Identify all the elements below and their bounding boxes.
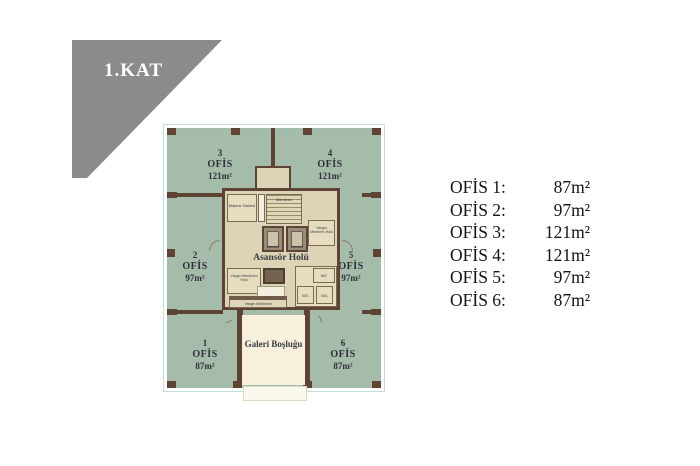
legend-office-name: OFİS 3: [450, 222, 506, 243]
floor-plan: 3 OFİS 121m² 4 OFİS 121m² 2 OFİS 97m² 5 … [167, 128, 381, 388]
shaft-hall: Yangın Merdiven Holü [308, 220, 335, 246]
page-canvas: 1.KAT 3 OFİS 121m² [0, 0, 700, 466]
light-shaft [258, 194, 265, 222]
office-type: OFİS [193, 159, 247, 171]
office-area: 97m² [171, 273, 219, 284]
mullion-ticks-right [378, 128, 381, 388]
office-number: 1 [181, 338, 229, 349]
office-number: 3 [193, 148, 247, 159]
office-3-label: 3 OFİS 121m² [193, 148, 247, 182]
office-area: 87m² [181, 361, 229, 372]
office-1-label: 1 OFİS 87m² [181, 338, 229, 372]
wall-stub-left-upper [167, 192, 177, 198]
fire-stair-hall: Yangın Merdiveni Holü [227, 268, 261, 294]
legend-row: OFİS 2: 97m² [450, 200, 590, 223]
elevator-hall-label: Asansör Holü [225, 253, 337, 263]
legend-office-area: 87m² [554, 177, 590, 198]
wall-stub-right-upper [371, 192, 381, 198]
column [167, 381, 176, 388]
legend-row: OFİS 3: 121m² [450, 222, 590, 245]
column [372, 381, 381, 388]
column [167, 128, 176, 135]
legend-row: OFİS 5: 97m² [450, 267, 590, 290]
legend-office-name: OFİS 4: [450, 245, 506, 266]
office-type: OFİS [181, 349, 229, 361]
office-type: OFİS [171, 261, 219, 273]
column [303, 128, 312, 135]
office-2-label: 2 OFİS 97m² [171, 250, 219, 284]
legend-row: OFİS 4: 121m² [450, 245, 590, 268]
gallery-void: Galeri Boşluğu [242, 315, 305, 385]
column [372, 128, 381, 135]
elevator-label: Asansör [288, 245, 306, 249]
elevator-cab-2: Asansör [286, 226, 308, 252]
door-arc [209, 240, 220, 251]
legend-row: OFİS 6: 87m² [450, 290, 590, 313]
office-area: 121m² [303, 171, 357, 182]
door-arc [342, 240, 353, 251]
legend-row: OFİS 1: 87m² [450, 177, 590, 200]
legend-office-area: 121m² [545, 245, 590, 266]
area-legend: OFİS 1: 87m² OFİS 2: 97m² OFİS 3: 121m² … [450, 177, 590, 312]
mullion-ticks-left [167, 128, 170, 388]
legend-office-area: 121m² [545, 222, 590, 243]
legend-office-area: 97m² [554, 267, 590, 288]
office-number: 6 [319, 338, 367, 349]
machine-room: Makine Dairesi [227, 194, 257, 222]
elevator-cab-1: Asansör [262, 226, 284, 252]
office-area: 121m² [193, 171, 247, 182]
legend-office-name: OFİS 2: [450, 200, 506, 221]
main-stairs: Merdiven [266, 194, 302, 224]
wall-office2-office1 [171, 310, 223, 314]
wall-center-top [271, 128, 275, 168]
fire-stairs: Yangın Merdiveni [229, 296, 287, 308]
office-6-label: 6 OFİS 87m² [319, 338, 367, 372]
elevator-label: Asansör [264, 245, 282, 249]
balcony-outline [243, 386, 307, 401]
legend-office-area: 87m² [554, 290, 590, 311]
office-number: 4 [303, 148, 357, 159]
wc-room: WC [316, 286, 333, 304]
service-shaft [263, 268, 285, 284]
door-arc [311, 312, 322, 323]
office-number: 2 [171, 250, 219, 261]
column [231, 128, 240, 135]
gallery-label: Galeri Boşluğu [242, 339, 305, 351]
wall-office3-office2 [171, 193, 223, 197]
legend-office-name: OFİS 6: [450, 290, 506, 311]
door-arc [225, 312, 236, 323]
wc-room: WC [297, 286, 314, 304]
office-area: 87m² [319, 361, 367, 372]
office-type: OFİS [303, 159, 357, 171]
legend-office-area: 97m² [554, 200, 590, 221]
legend-office-name: OFİS 1: [450, 177, 506, 198]
wall-stub-right-lower [371, 309, 381, 315]
office-type: OFİS [319, 349, 367, 361]
office-4-label: 4 OFİS 121m² [303, 148, 357, 182]
wc-room: WC [313, 268, 335, 283]
wall-stub-left-lower [167, 309, 177, 315]
legend-office-name: OFİS 5: [450, 267, 506, 288]
floor-banner-label: 1.KAT [104, 60, 163, 82]
